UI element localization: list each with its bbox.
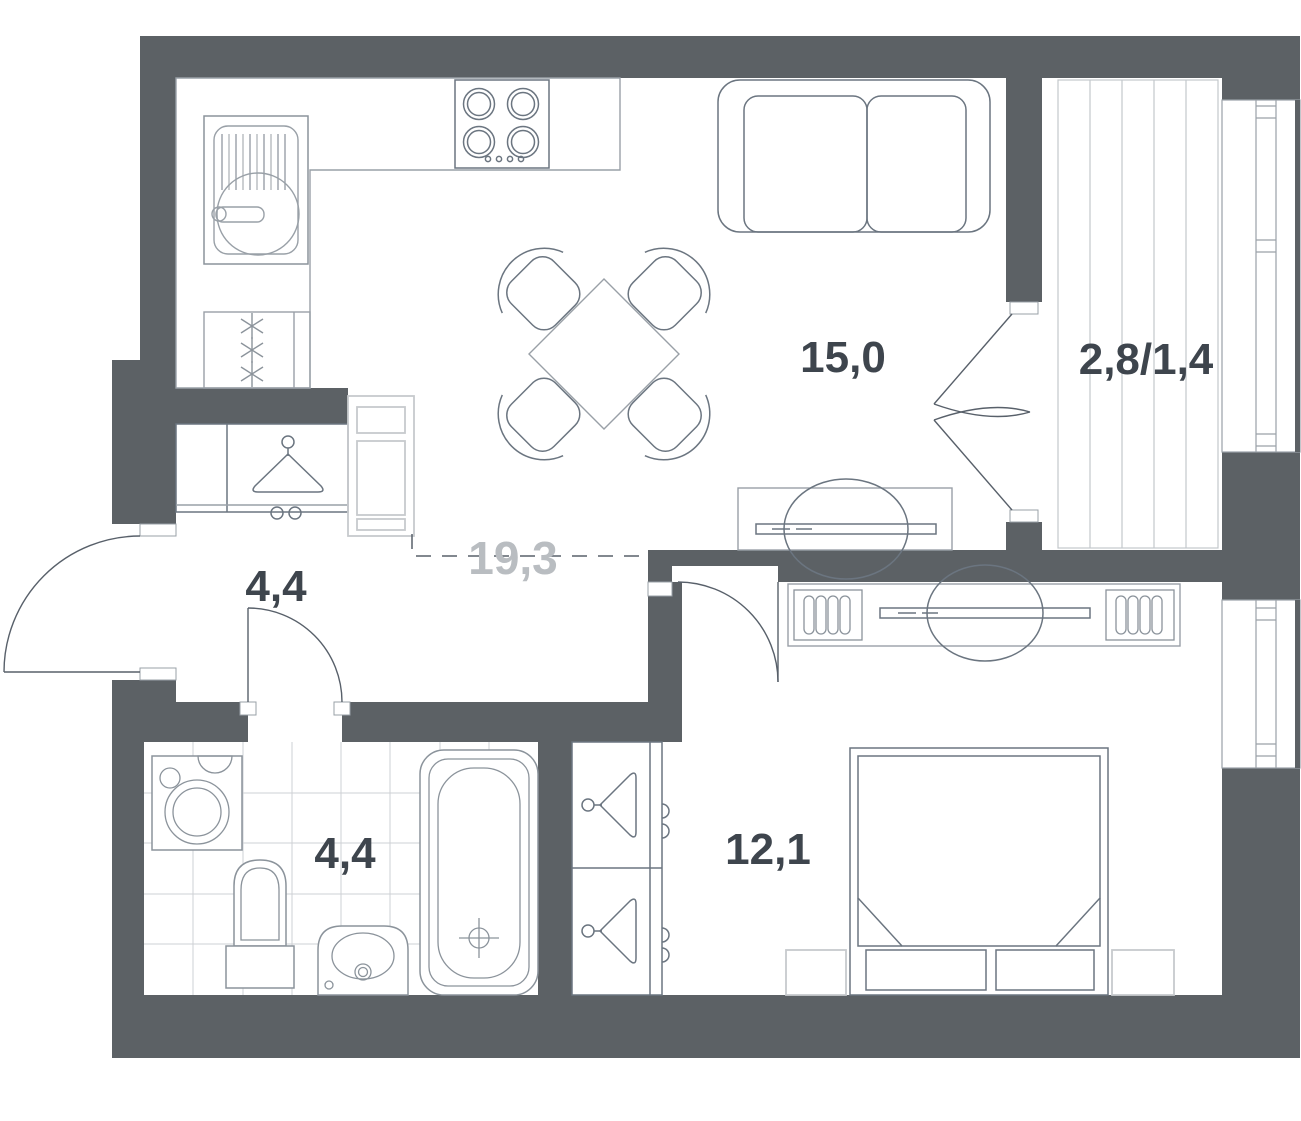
dining-chair-icon [481, 231, 595, 345]
bathroom-sink-icon [318, 926, 408, 995]
hanger-icon [582, 773, 636, 837]
room-label-bedroom: 12,1 [725, 825, 811, 874]
bathroom-door [240, 608, 350, 742]
entrance-door [4, 524, 176, 680]
cabinet-icon [348, 396, 414, 536]
toilet-icon [226, 860, 294, 988]
kitchen-sink-icon [204, 116, 308, 264]
hall-wardrobe [176, 424, 348, 519]
room-label-hallway: 4,4 [245, 562, 307, 611]
sofa-icon [718, 80, 990, 232]
nightstand [786, 950, 1174, 995]
stove-icon [455, 80, 549, 168]
balcony-french-door [934, 302, 1038, 522]
dining-chair-icon [612, 362, 726, 476]
dining-chair-icon [612, 231, 726, 345]
bedroom-window [1222, 600, 1300, 768]
floor-plan: 15,0 19,3 2,8/1,4 4,4 4,4 12,1 [0, 0, 1301, 1121]
room-label-balcony: 2,8/1,4 [1079, 335, 1214, 384]
dining-chair-icon [481, 362, 595, 476]
bed-icon [850, 748, 1108, 995]
fridge-icon [204, 312, 310, 388]
room-label-combined-area: 19,3 [468, 532, 558, 584]
hanger-icon [253, 436, 323, 492]
bathtub-icon [420, 750, 538, 995]
bedroom-wardrobe [572, 742, 669, 995]
room-label-living-kitchen: 15,0 [800, 333, 886, 382]
room-label-bathroom: 4,4 [314, 829, 376, 878]
bookshelf-icon [1106, 590, 1174, 640]
balcony-window [1222, 100, 1300, 452]
hanger-icon [582, 899, 636, 963]
dining-table-icon [481, 231, 726, 476]
bookshelf-icon [794, 590, 862, 640]
washing-machine-icon [152, 756, 242, 850]
balcony-decking-icon [1058, 80, 1218, 548]
